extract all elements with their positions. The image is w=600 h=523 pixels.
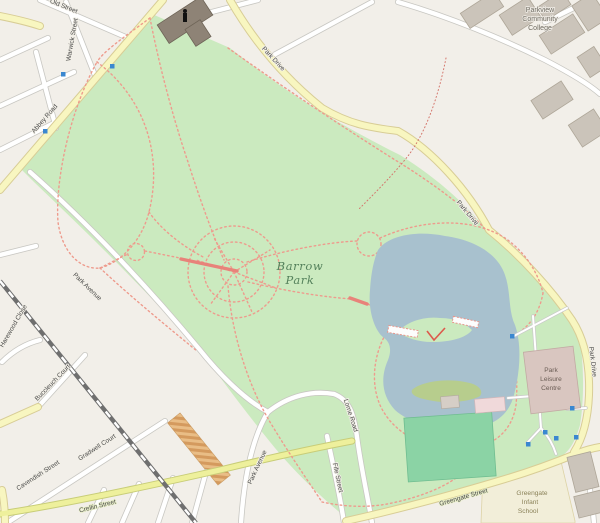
school-label: Infant <box>522 499 539 506</box>
blue-square-marker-icon <box>526 442 531 447</box>
blue-square-marker-icon <box>61 72 66 77</box>
school-label: School <box>518 508 539 515</box>
park-name-label: Barrow <box>276 259 324 273</box>
map-canvas[interactable]: Old Street Warwick Street Abbey Road Par… <box>0 0 600 523</box>
blue-square-marker-icon <box>43 129 48 134</box>
park-name-label: Park <box>285 273 315 287</box>
college-label: Community <box>522 16 558 23</box>
school-label: Greengate <box>516 490 547 497</box>
map-viewport[interactable]: Old Street Warwick Street Abbey Road Par… <box>0 0 600 523</box>
blue-square-marker-icon <box>110 64 115 69</box>
college-label: Parkview <box>526 7 555 14</box>
blue-square-marker-icon <box>554 436 559 441</box>
sports-pitch <box>404 412 496 482</box>
leisure-centre-label: Centre <box>541 385 561 392</box>
blue-square-marker-icon <box>510 334 515 339</box>
blue-square-marker-icon <box>543 430 548 435</box>
blue-square-marker-icon <box>574 435 579 440</box>
leisure-centre-label: Leisure <box>540 376 562 383</box>
college-label: College <box>528 25 552 32</box>
leisure-centre-label: Park <box>544 367 558 374</box>
monument-icon <box>183 9 187 22</box>
blue-square-marker-icon <box>570 406 575 411</box>
